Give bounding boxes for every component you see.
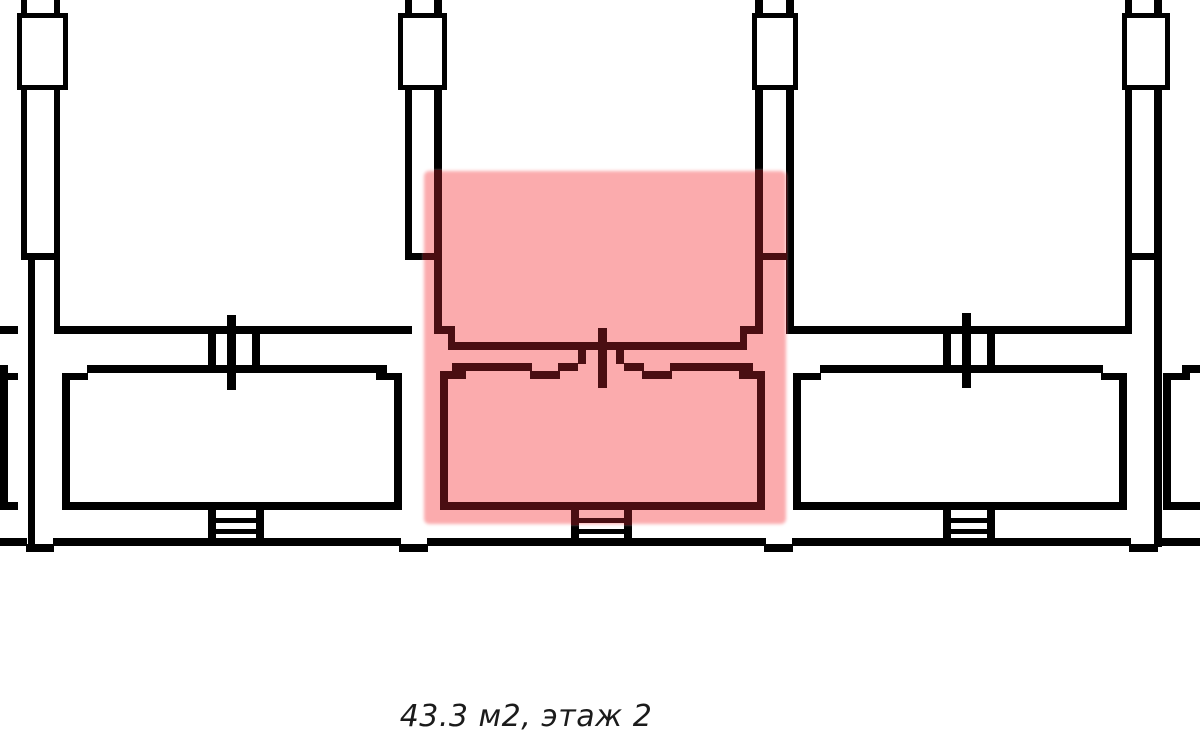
floorplan-svg [0, 0, 1200, 745]
apartment-caption: 43.3 м2, этаж 2 [358, 699, 694, 734]
floorplan-canvas [0, 0, 1200, 745]
